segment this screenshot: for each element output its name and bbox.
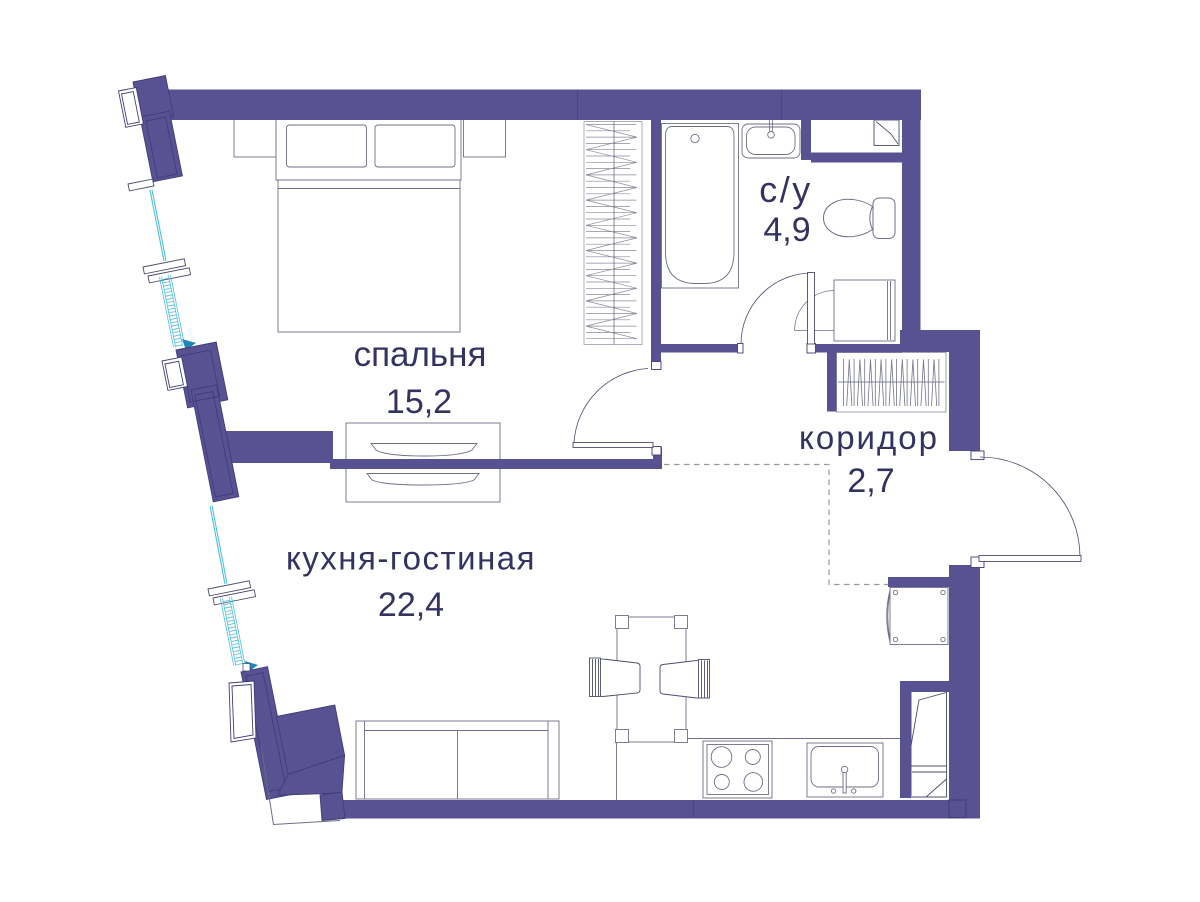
svg-text:15,2: 15,2: [386, 383, 452, 421]
svg-text:2,7: 2,7: [847, 462, 894, 500]
svg-text:22,4: 22,4: [378, 586, 444, 624]
svg-text:коридор: коридор: [799, 419, 939, 456]
svg-text:4,9: 4,9: [763, 211, 810, 249]
svg-text:с/у: с/у: [759, 169, 813, 210]
svg-text:спальня: спальня: [354, 335, 487, 374]
svg-text:кухня-гостиная: кухня-гостиная: [286, 540, 536, 577]
